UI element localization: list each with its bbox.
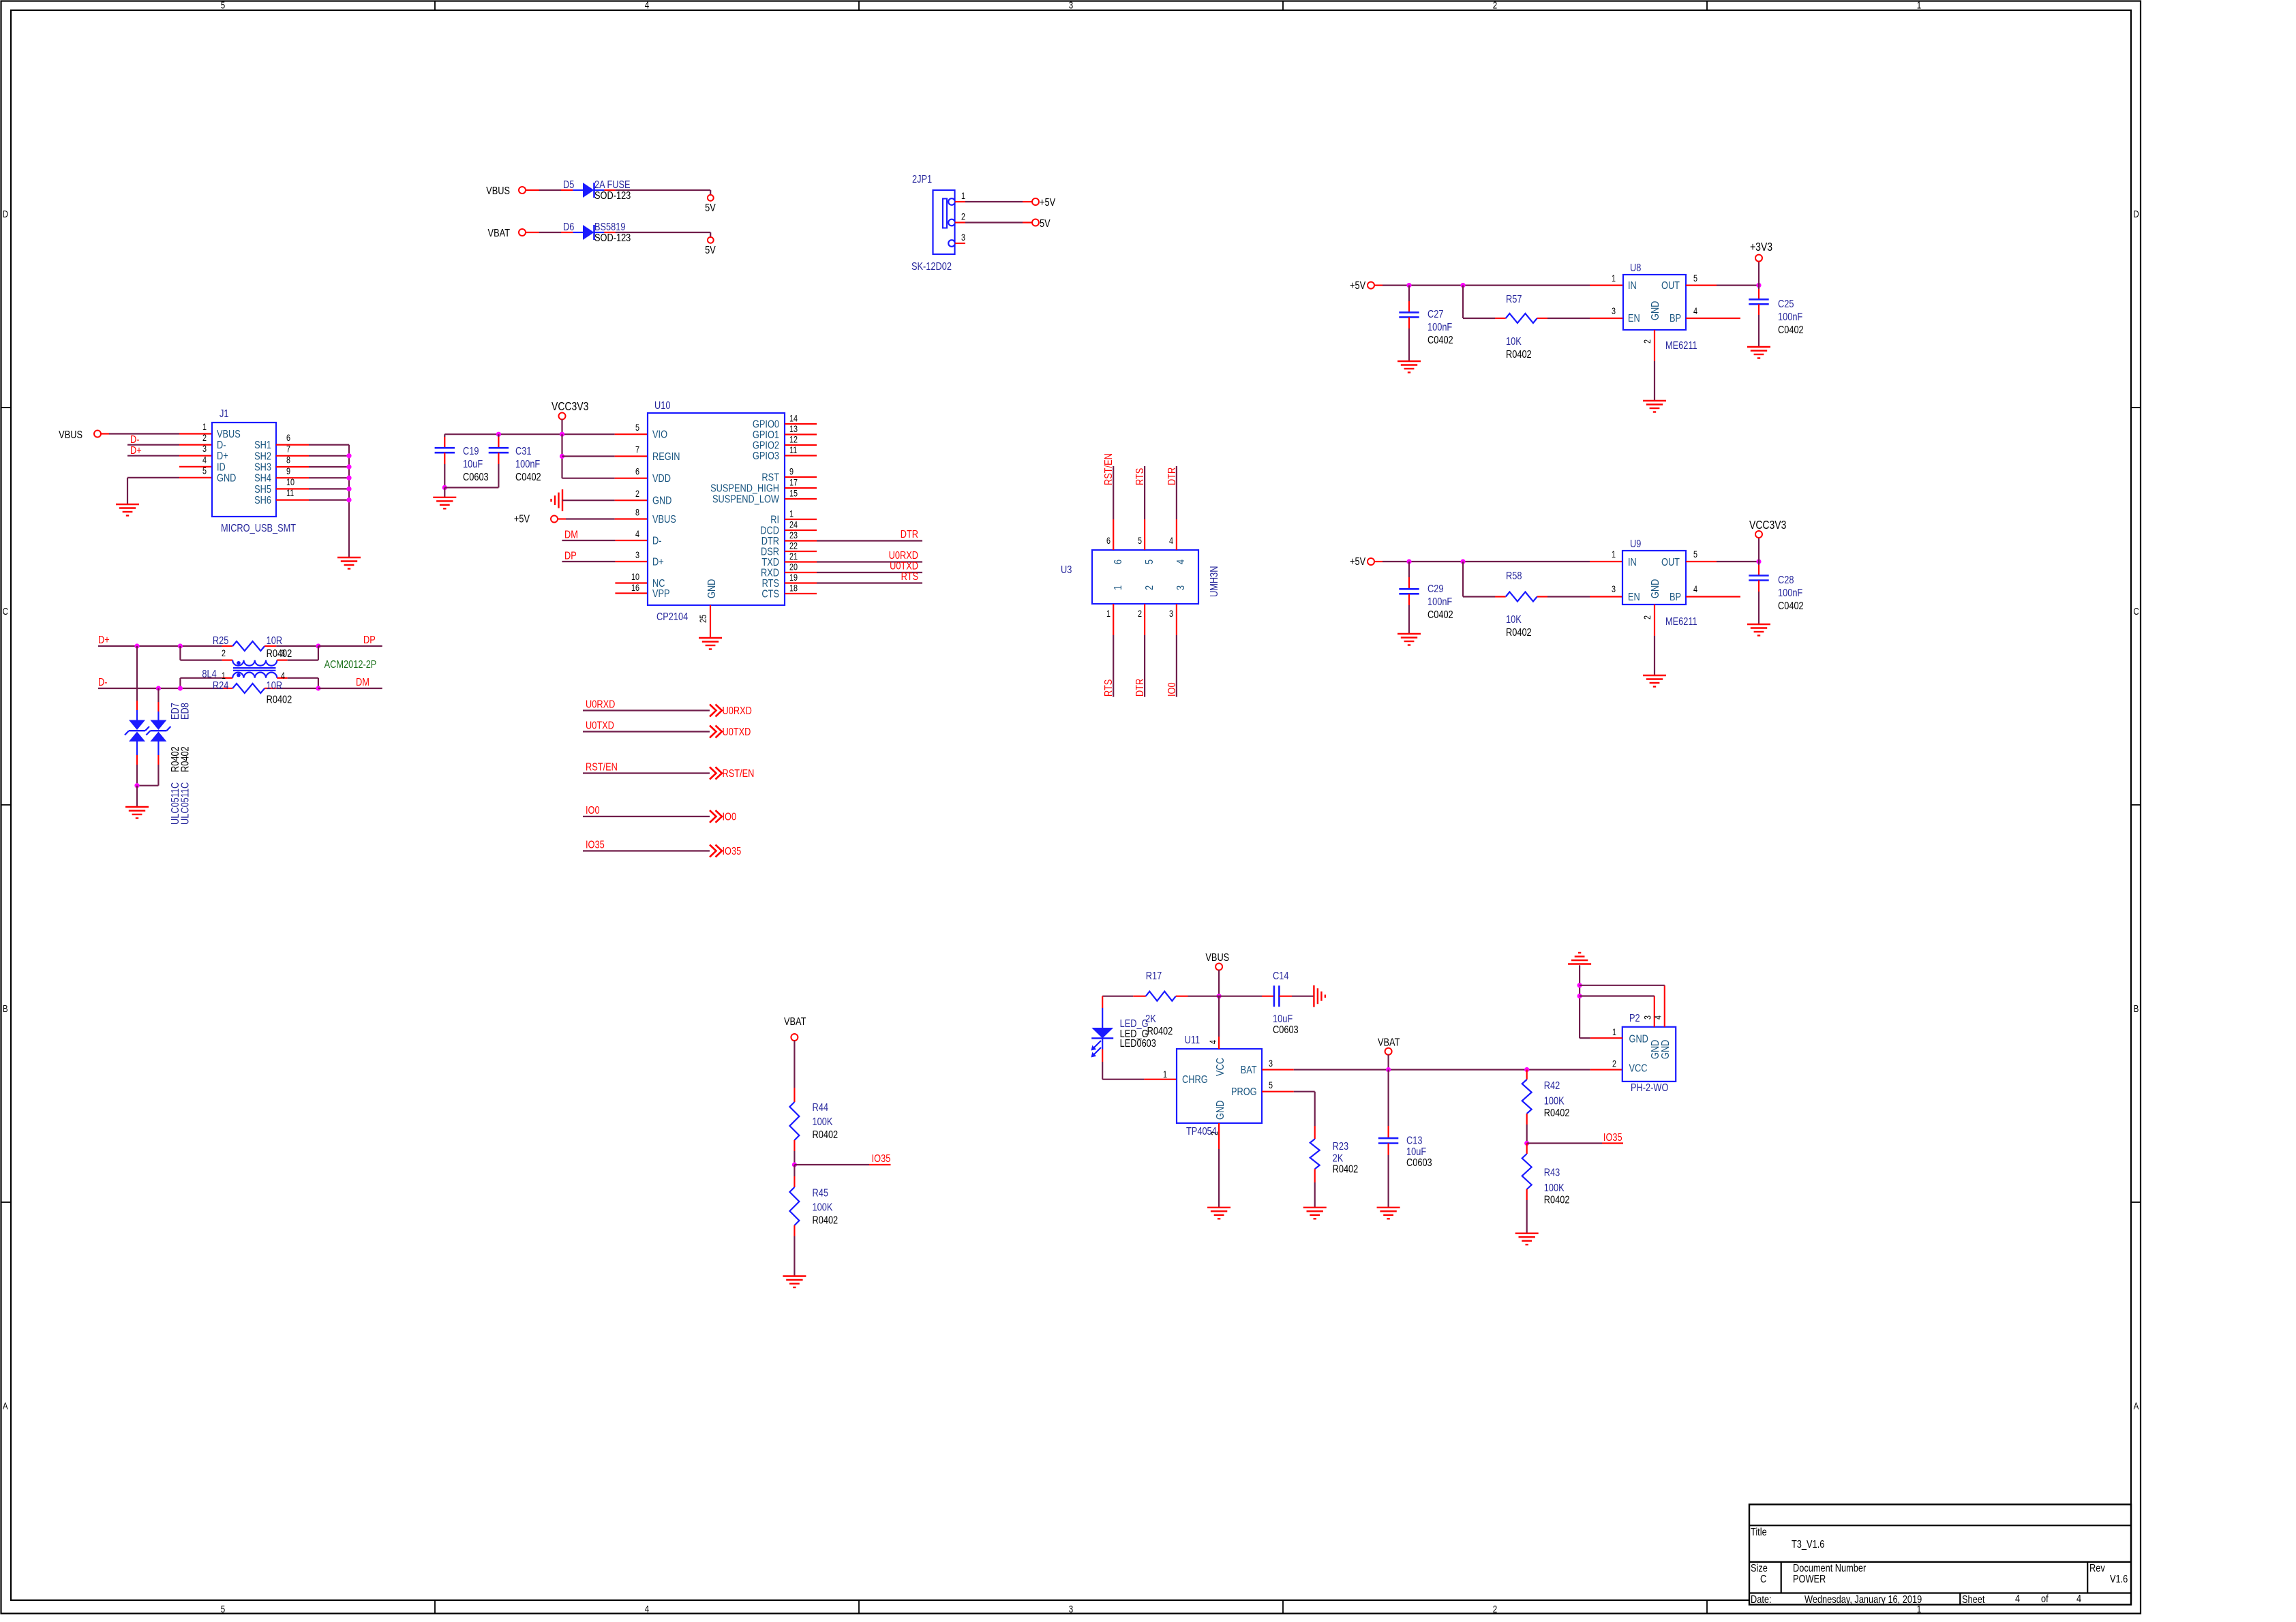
- svg-text:100nF: 100nF: [515, 459, 540, 471]
- svg-text:R0402: R0402: [1147, 1026, 1173, 1038]
- svg-text:C0603: C0603: [1406, 1157, 1432, 1169]
- svg-text:C: C: [1760, 1574, 1766, 1586]
- svg-text:GPIO3: GPIO3: [753, 450, 779, 463]
- svg-text:U0RXD: U0RXD: [586, 699, 615, 711]
- svg-text:RTS: RTS: [1134, 468, 1147, 485]
- svg-text:SH6: SH6: [254, 495, 271, 507]
- svg-text:100K: 100K: [1544, 1095, 1565, 1107]
- svg-text:3: 3: [635, 550, 639, 560]
- svg-text:RTS: RTS: [901, 571, 918, 583]
- svg-text:R0402: R0402: [1544, 1107, 1570, 1120]
- svg-text:C0402: C0402: [1428, 609, 1453, 622]
- svg-text:100K: 100K: [813, 1202, 833, 1214]
- svg-text:25: 25: [698, 615, 708, 623]
- svg-text:SH4: SH4: [254, 472, 271, 485]
- svg-text:R0402: R0402: [267, 694, 292, 706]
- svg-text:1: 1: [961, 191, 965, 201]
- svg-text:4: 4: [202, 455, 207, 465]
- svg-text:10: 10: [631, 572, 639, 582]
- svg-text:B: B: [2134, 1003, 2139, 1015]
- svg-text:VCC3V3: VCC3V3: [1749, 519, 1787, 532]
- svg-text:PH-2-WO: PH-2-WO: [1631, 1082, 1668, 1095]
- svg-text:P2: P2: [1629, 1013, 1640, 1025]
- svg-text:D6: D6: [563, 221, 574, 234]
- svg-text:R0402: R0402: [1544, 1194, 1570, 1206]
- svg-text:BP: BP: [1670, 313, 1681, 325]
- svg-text:100nF: 100nF: [1778, 587, 1802, 600]
- svg-text:5: 5: [1269, 1080, 1273, 1090]
- svg-text:C29: C29: [1428, 583, 1443, 596]
- svg-text:Date:: Date:: [1751, 1594, 1772, 1606]
- svg-text:EN: EN: [1628, 313, 1640, 325]
- svg-text:IO35: IO35: [1603, 1132, 1622, 1144]
- svg-text:IO0: IO0: [723, 811, 737, 823]
- svg-text:+5V: +5V: [1350, 556, 1365, 568]
- svg-text:R0402: R0402: [1506, 627, 1532, 639]
- svg-text:EN: EN: [1628, 592, 1640, 604]
- svg-text:2: 2: [1642, 339, 1652, 343]
- svg-text:VBAT: VBAT: [488, 228, 511, 240]
- svg-text:4: 4: [635, 529, 639, 539]
- svg-text:11: 11: [789, 445, 797, 455]
- svg-text:VBUS: VBUS: [486, 185, 510, 198]
- svg-text:VBUS: VBUS: [652, 514, 676, 526]
- svg-text:2: 2: [202, 433, 207, 443]
- svg-text:A: A: [3, 1401, 8, 1412]
- svg-text:D: D: [2133, 209, 2139, 220]
- svg-text:R45: R45: [813, 1187, 828, 1199]
- svg-text:R58: R58: [1506, 570, 1522, 583]
- svg-text:2: 2: [222, 648, 226, 658]
- svg-text:DTR: DTR: [1166, 468, 1179, 485]
- svg-text:D: D: [3, 209, 8, 220]
- svg-text:VDD: VDD: [652, 473, 671, 485]
- svg-text:5: 5: [1693, 549, 1697, 560]
- svg-text:of: of: [2041, 1593, 2049, 1606]
- svg-text:GND: GND: [1629, 1033, 1648, 1045]
- svg-text:VBUS: VBUS: [1205, 952, 1229, 964]
- svg-text:BP: BP: [1670, 592, 1681, 604]
- svg-text:SH5: SH5: [254, 484, 271, 496]
- svg-text:C14: C14: [1273, 970, 1288, 983]
- svg-text:C0402: C0402: [1778, 324, 1804, 337]
- svg-text:5: 5: [635, 423, 639, 433]
- svg-text:R43: R43: [1544, 1167, 1560, 1179]
- svg-text:5V: 5V: [1040, 218, 1051, 230]
- svg-text:GND: GND: [706, 579, 719, 598]
- svg-text:GND: GND: [217, 472, 236, 485]
- svg-text:ME6211: ME6211: [1665, 616, 1697, 628]
- svg-text:5: 5: [221, 0, 225, 11]
- svg-text:GND: GND: [1215, 1101, 1227, 1120]
- svg-text:Title: Title: [1751, 1527, 1767, 1539]
- svg-text:19: 19: [789, 572, 798, 583]
- svg-text:U8: U8: [1630, 262, 1641, 275]
- svg-text:4: 4: [1652, 1015, 1663, 1020]
- svg-text:5: 5: [221, 1604, 225, 1615]
- svg-text:4: 4: [645, 1604, 649, 1615]
- svg-text:23: 23: [789, 530, 798, 540]
- svg-text:T3_V1.6: T3_V1.6: [1792, 1539, 1824, 1551]
- svg-text:3: 3: [1269, 1058, 1273, 1069]
- svg-text:9: 9: [789, 466, 794, 476]
- svg-text:DTR: DTR: [901, 529, 918, 541]
- svg-text:R24: R24: [213, 680, 228, 692]
- svg-text:SUSPEND_LOW: SUSPEND_LOW: [712, 493, 779, 506]
- svg-text:3: 3: [1642, 1015, 1652, 1020]
- svg-text:B: B: [3, 1003, 8, 1015]
- svg-text:MICRO_USB_SMT: MICRO_USB_SMT: [221, 523, 296, 535]
- svg-text:3: 3: [1069, 0, 1073, 11]
- svg-text:IO35: IO35: [872, 1153, 891, 1165]
- svg-text:R0402: R0402: [1506, 349, 1532, 361]
- svg-text:2JP1: 2JP1: [912, 174, 932, 186]
- svg-text:C0402: C0402: [515, 472, 541, 484]
- svg-text:ED8: ED8: [179, 703, 192, 720]
- svg-text:SOD-123: SOD-123: [594, 190, 631, 202]
- svg-text:RST/EN: RST/EN: [723, 768, 755, 780]
- svg-text:10uF: 10uF: [463, 459, 483, 471]
- svg-text:100nF: 100nF: [1428, 596, 1452, 609]
- svg-text:100K: 100K: [813, 1116, 833, 1129]
- svg-text:10K: 10K: [1506, 336, 1522, 348]
- svg-text:VCC: VCC: [1215, 1058, 1227, 1076]
- svg-text:GND: GND: [652, 495, 671, 507]
- svg-text:1: 1: [789, 508, 794, 519]
- svg-text:VPP: VPP: [652, 588, 670, 600]
- svg-text:SH3: SH3: [254, 461, 271, 474]
- svg-text:VBAT: VBAT: [1378, 1037, 1400, 1049]
- svg-text:2: 2: [1612, 1058, 1616, 1069]
- svg-text:4: 4: [2015, 1593, 2020, 1606]
- svg-text:VIO: VIO: [652, 429, 667, 441]
- svg-text:R0402: R0402: [267, 648, 292, 660]
- svg-text:3: 3: [1175, 585, 1188, 590]
- svg-text:SOD-123: SOD-123: [594, 232, 631, 245]
- svg-text:R42: R42: [1544, 1080, 1560, 1092]
- svg-text:C0603: C0603: [463, 472, 489, 484]
- svg-text:18: 18: [789, 583, 798, 593]
- svg-text:RTS: RTS: [1103, 679, 1115, 697]
- svg-text:C: C: [3, 606, 8, 617]
- svg-text:2: 2: [1493, 0, 1497, 11]
- svg-text:2: 2: [635, 489, 639, 499]
- svg-text:D5: D5: [563, 179, 574, 192]
- svg-text:RST/EN: RST/EN: [586, 761, 618, 774]
- svg-text:C13: C13: [1406, 1135, 1422, 1147]
- svg-text:DM: DM: [356, 677, 369, 689]
- svg-text:20: 20: [789, 562, 798, 572]
- svg-text:10R: 10R: [267, 680, 282, 692]
- svg-text:D-: D-: [652, 535, 662, 547]
- svg-text:4: 4: [1175, 560, 1188, 564]
- svg-text:U11: U11: [1185, 1035, 1200, 1047]
- svg-text:U0TXD: U0TXD: [586, 720, 614, 732]
- svg-text:DP: DP: [363, 634, 376, 647]
- svg-text:24: 24: [789, 519, 798, 530]
- svg-text:DM: DM: [564, 529, 578, 541]
- svg-text:C0603: C0603: [1273, 1024, 1299, 1037]
- svg-text:IO35: IO35: [723, 846, 742, 858]
- svg-text:8: 8: [635, 507, 639, 517]
- svg-text:C31: C31: [515, 446, 531, 458]
- svg-text:OUT: OUT: [1661, 557, 1680, 569]
- svg-text:ME6211: ME6211: [1665, 340, 1697, 352]
- svg-text:6: 6: [1113, 560, 1125, 564]
- svg-text:GND: GND: [1650, 301, 1662, 320]
- svg-text:D-: D-: [98, 677, 108, 689]
- svg-text:R23: R23: [1333, 1141, 1348, 1153]
- svg-text:3: 3: [281, 648, 285, 658]
- svg-text:1: 1: [1163, 1069, 1167, 1080]
- svg-text:17: 17: [789, 477, 798, 487]
- svg-text:D+: D+: [98, 634, 110, 647]
- svg-text:IO0: IO0: [586, 805, 600, 817]
- svg-text:10R: 10R: [267, 635, 282, 647]
- svg-text:R57: R57: [1506, 294, 1522, 306]
- svg-text:2: 2: [1144, 585, 1156, 590]
- svg-text:C: C: [2133, 606, 2139, 617]
- svg-text:2: 2: [1138, 609, 1142, 619]
- svg-text:IO0: IO0: [1166, 682, 1179, 697]
- svg-text:+5V: +5V: [1350, 280, 1365, 292]
- svg-text:1: 1: [1106, 609, 1111, 619]
- svg-text:1: 1: [1917, 0, 1921, 11]
- svg-text:C28: C28: [1778, 575, 1794, 587]
- svg-text:BAT: BAT: [1241, 1065, 1257, 1077]
- svg-text:D-: D-: [217, 440, 226, 452]
- svg-text:+5V: +5V: [514, 513, 530, 525]
- svg-text:5: 5: [1693, 273, 1697, 284]
- svg-text:6: 6: [635, 466, 639, 476]
- svg-text:4: 4: [2076, 1593, 2081, 1606]
- svg-text:CTS: CTS: [761, 588, 779, 600]
- svg-text:D+: D+: [652, 556, 664, 568]
- svg-text:+3V3: +3V3: [1750, 241, 1772, 254]
- svg-text:2: 2: [1209, 1131, 1220, 1135]
- svg-text:SH2: SH2: [254, 450, 271, 463]
- svg-text:3: 3: [1612, 584, 1616, 594]
- svg-text:VBUS: VBUS: [59, 429, 82, 442]
- svg-text:C25: C25: [1778, 299, 1794, 311]
- svg-text:VBAT: VBAT: [784, 1016, 806, 1028]
- svg-text:R17: R17: [1146, 970, 1162, 983]
- svg-text:VCC3V3: VCC3V3: [552, 401, 589, 414]
- svg-text:IO35: IO35: [586, 839, 605, 851]
- svg-text:DTR: DTR: [1134, 679, 1147, 697]
- svg-text:U0RXD: U0RXD: [723, 705, 752, 718]
- svg-text:5: 5: [202, 465, 207, 476]
- svg-text:DP: DP: [564, 550, 577, 562]
- svg-text:6: 6: [286, 433, 290, 443]
- svg-text:3: 3: [202, 444, 207, 454]
- svg-text:IN: IN: [1628, 557, 1637, 569]
- svg-text:4: 4: [645, 0, 649, 11]
- svg-text:6: 6: [1106, 536, 1111, 546]
- svg-text:2: 2: [961, 211, 965, 221]
- svg-text:4: 4: [1208, 1040, 1218, 1044]
- svg-text:R0402: R0402: [179, 746, 192, 772]
- svg-text:100nF: 100nF: [1428, 322, 1452, 334]
- svg-text:ACM2012-2P: ACM2012-2P: [324, 659, 377, 671]
- svg-text:UMH3N: UMH3N: [1209, 566, 1221, 597]
- svg-text:SH1: SH1: [254, 440, 271, 452]
- svg-text:LED0603: LED0603: [1120, 1038, 1156, 1050]
- svg-text:3: 3: [1612, 306, 1616, 316]
- svg-text:C0402: C0402: [1778, 600, 1804, 613]
- svg-text:1: 1: [1612, 273, 1616, 284]
- svg-text:R0402: R0402: [1333, 1163, 1359, 1176]
- svg-text:4: 4: [1169, 536, 1173, 546]
- svg-text:OUT: OUT: [1661, 280, 1680, 292]
- svg-text:POWER: POWER: [1793, 1574, 1826, 1586]
- svg-text:C0402: C0402: [1428, 335, 1453, 347]
- svg-text:R0402: R0402: [813, 1214, 839, 1227]
- svg-text:5: 5: [1144, 560, 1156, 564]
- svg-text:IN: IN: [1628, 280, 1637, 292]
- svg-text:PROG: PROG: [1231, 1086, 1257, 1099]
- svg-text:RST/EN: RST/EN: [1103, 453, 1115, 485]
- svg-text:Rev: Rev: [2089, 1563, 2105, 1575]
- svg-text:5V: 5V: [705, 245, 716, 257]
- svg-text:4: 4: [1693, 584, 1697, 594]
- svg-text:A: A: [2134, 1401, 2139, 1412]
- svg-text:16: 16: [631, 583, 639, 593]
- svg-text:3: 3: [1069, 1604, 1073, 1615]
- svg-text:1: 1: [1612, 549, 1616, 560]
- svg-text:7: 7: [635, 444, 639, 455]
- svg-text:12: 12: [789, 434, 798, 444]
- svg-text:U9: U9: [1630, 538, 1641, 551]
- svg-text:+5V: +5V: [1040, 197, 1055, 209]
- svg-text:C19: C19: [463, 446, 479, 458]
- svg-text:1: 1: [1113, 585, 1125, 590]
- svg-text:Sheet: Sheet: [1962, 1594, 1984, 1606]
- svg-text:15: 15: [789, 488, 798, 498]
- svg-text:R44: R44: [813, 1102, 828, 1114]
- svg-text:R25: R25: [213, 635, 228, 647]
- svg-text:2: 2: [1642, 615, 1652, 619]
- svg-text:C27: C27: [1428, 309, 1443, 321]
- svg-text:3: 3: [961, 232, 965, 243]
- svg-text:1: 1: [202, 422, 207, 432]
- svg-text:2: 2: [1493, 1604, 1497, 1615]
- svg-text:GND: GND: [1660, 1040, 1672, 1059]
- svg-text:100nF: 100nF: [1778, 311, 1802, 324]
- svg-text:R0402: R0402: [813, 1129, 839, 1142]
- svg-text:U3: U3: [1061, 564, 1072, 577]
- svg-text:14: 14: [789, 413, 798, 423]
- svg-text:13: 13: [789, 424, 798, 434]
- svg-text:U10: U10: [654, 400, 670, 412]
- svg-text:100K: 100K: [1544, 1182, 1565, 1195]
- svg-text:10K: 10K: [1506, 614, 1522, 626]
- svg-text:ULC0511C: ULC0511C: [179, 782, 192, 825]
- svg-text:Wednesday, January 16, 2019: Wednesday, January 16, 2019: [1804, 1594, 1922, 1606]
- svg-text:CHRG: CHRG: [1182, 1074, 1208, 1086]
- svg-text:22: 22: [789, 540, 798, 551]
- svg-text:1: 1: [1612, 1027, 1616, 1037]
- svg-text:5V: 5V: [705, 202, 716, 215]
- svg-text:3: 3: [1169, 609, 1173, 619]
- svg-text:VCC: VCC: [1629, 1062, 1648, 1075]
- svg-text:GND: GND: [1650, 579, 1662, 598]
- svg-text:J1: J1: [220, 408, 229, 420]
- svg-text:SK-12D02: SK-12D02: [911, 261, 952, 273]
- svg-text:21: 21: [789, 551, 798, 562]
- svg-text:CP2104: CP2104: [656, 611, 688, 624]
- svg-text:REGIN: REGIN: [652, 451, 680, 463]
- svg-text:VBUS: VBUS: [217, 429, 241, 441]
- svg-text:4: 4: [1693, 306, 1697, 316]
- svg-text:D+: D+: [217, 450, 228, 463]
- svg-text:U0TXD: U0TXD: [723, 726, 751, 739]
- svg-text:ID: ID: [217, 461, 226, 474]
- svg-text:V1.6: V1.6: [2110, 1574, 2128, 1586]
- svg-text:5: 5: [1138, 536, 1142, 546]
